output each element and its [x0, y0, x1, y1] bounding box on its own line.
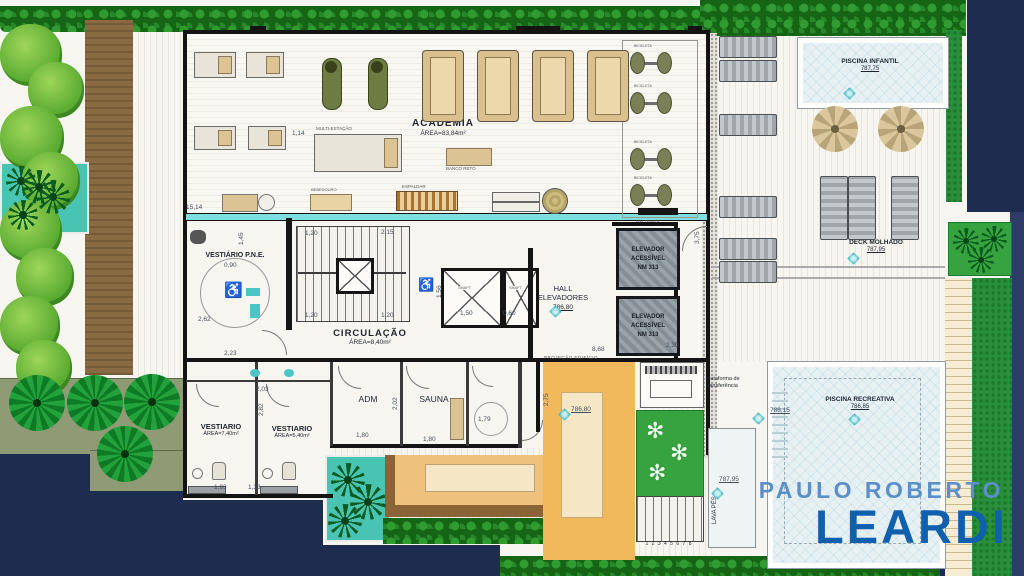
spin-bike: [368, 58, 388, 110]
elevator-2-l2: ACESSÍVEL: [619, 322, 677, 331]
pne-fixture: [250, 304, 260, 318]
toilet: [282, 462, 296, 480]
sink: [262, 468, 273, 479]
dimension-label: 1,93: [214, 485, 227, 492]
dimension-label: 1,79: [478, 417, 491, 424]
dimension-label: 1,20: [381, 313, 394, 320]
vestiario2-label: VESTIARIO ÁREA=5,40m²: [258, 424, 326, 440]
dimension-label: 2,02: [393, 397, 400, 410]
exercise-bike: [628, 90, 674, 116]
right-edge-shadow: [1010, 212, 1024, 576]
multi-station: [314, 134, 402, 172]
dimension-label: 1,20: [305, 231, 318, 238]
wall-sauna-right: [466, 362, 469, 446]
stair-numbers: 1 2 3 4 5 6 7 8: [634, 541, 704, 547]
sun-lounger: [820, 176, 848, 240]
gym-machine: [194, 126, 236, 150]
dimension-label: 0,90: [224, 263, 237, 270]
wheelchair-icon: ♿: [224, 283, 243, 298]
adm-label: ADM: [340, 394, 396, 404]
vestiario1-area: ÁREA=7,40m²: [186, 431, 256, 438]
deck-molhado-name: DECK MOLHADO: [836, 239, 916, 247]
pne-label: VESTIÁRIO P.N.E.: [190, 252, 280, 260]
top-right-trees: [700, 0, 966, 36]
halteres-rack: [638, 208, 678, 215]
pool-ramp: [772, 388, 788, 458]
dimension-label: 788,15: [770, 408, 790, 415]
dimension-label: 1,14: [292, 131, 305, 138]
dimension-label: 8,68: [592, 347, 605, 354]
shaft-1: [441, 268, 503, 328]
dimension-label: 1,20: [305, 313, 318, 320]
gym-bench: [222, 194, 258, 212]
wall-vestiario-bottom: [183, 494, 333, 498]
elevator-2-l1: ELEVADOR: [619, 313, 677, 322]
elevator-2-l3: NM 313: [619, 331, 677, 340]
piscina-infantil: [798, 38, 948, 108]
sun-lounger: [719, 196, 777, 218]
vestiario1-name: VESTIARIO: [186, 422, 256, 431]
projecao-label: PROJEÇÃO EDIFÍCIO: [544, 356, 598, 361]
entry-sink: [284, 369, 294, 377]
treadmill: [422, 50, 464, 122]
shaft-2-label: SHAFT: [509, 286, 522, 290]
gym-stool: [258, 194, 275, 211]
lava-pes-label: LAVA PÉS: [712, 496, 719, 524]
vestiario2-area: ÁREA=5,40m²: [258, 433, 326, 440]
deck-molhado-label: DECK MOLHADO 787,95: [836, 239, 916, 254]
dimension-label: 1,50: [460, 311, 473, 318]
dimension-label: 2,75: [544, 393, 551, 406]
palm-plant: [8, 200, 38, 230]
elevator-1-l3: NM 313: [619, 264, 677, 273]
flower-icon: ✻: [648, 462, 666, 484]
dimension-label: 2,30: [666, 343, 679, 350]
sun-lounger: [719, 114, 777, 136]
sun-lounger: [719, 238, 777, 260]
pne-fixture: [246, 288, 260, 296]
stair-landing: [336, 258, 374, 294]
piscina-recreativa-name: PISCINA RECREATIVA: [800, 396, 920, 404]
gate-mark-1: [250, 26, 266, 34]
parasol-icon: [812, 106, 858, 152]
pergola-wood-bottom: [385, 505, 543, 517]
piscina-infantil-level: 787,75: [810, 66, 930, 73]
treadmill: [532, 50, 574, 122]
pool-stairs: [636, 496, 704, 542]
wall-adm-left: [330, 362, 333, 446]
multi-station-label: MULTI-ESTAÇÃO: [316, 127, 352, 132]
dimension-label: 2,23: [224, 351, 237, 358]
gym-machine: [248, 126, 286, 150]
hall-label: HALL ELEVADORES 786,80: [528, 284, 598, 312]
plataforma-inner: [650, 380, 692, 398]
pne-wall: [286, 218, 292, 330]
wall-adm-right: [400, 362, 403, 446]
plataforma-l1: plataforma de: [706, 376, 768, 383]
left-deck: [133, 30, 185, 380]
palm-plant: [968, 247, 994, 273]
palm-plant: [328, 504, 362, 538]
shaft-1-label: SHAFT: [458, 286, 471, 290]
gym-machine: [246, 52, 284, 78]
logo-line2: LEARDI: [815, 503, 1008, 550]
exercise-bike: [628, 182, 674, 208]
elevator-1-l1: ELEVADOR: [619, 246, 677, 255]
gym-machine: [194, 52, 236, 78]
right-green-strip-top: [946, 30, 962, 202]
piscina-infantil-label: PISCINA INFANTIL 787,75: [810, 58, 930, 73]
floor-plan-image: MULTI-ESTAÇÃO BANCO RETO BEBEDOURO ESPAL…: [0, 0, 1024, 576]
piscina-recreativa-level: 786,85: [800, 404, 920, 411]
gate-mark-3: [688, 26, 702, 34]
bicicleta-label: BICICLETA: [634, 141, 652, 145]
sun-lounger: [719, 261, 777, 283]
dimension-label: 2,15: [381, 230, 394, 237]
circulacao-name: CIRCULAÇÃO: [310, 328, 430, 339]
entry-sink: [250, 369, 260, 377]
wall-rooms-bottom: [330, 444, 522, 448]
flower-icon: ✻: [670, 442, 688, 464]
swirl-tree: [9, 375, 65, 431]
sun-lounger: [719, 36, 777, 58]
dimension-label: 2,82: [259, 403, 266, 416]
parasol-icon: [878, 106, 924, 152]
elevator-1: ELEVADOR ACESSÍVEL NM 313: [616, 228, 680, 290]
bicicleta-label: BICICLETA: [634, 85, 652, 89]
dimension-label: 786,80: [571, 407, 591, 414]
vestiario1-label: VESTIARIO ÁREA=7,40m²: [186, 422, 256, 438]
vestiario2-name: VESTIARIO: [258, 424, 326, 433]
bebedouro-label: BEBEDOURO: [311, 188, 337, 192]
flower-icon: ✻: [646, 420, 664, 442]
dimension-label: 1,33: [248, 485, 261, 492]
espaldar: [396, 191, 458, 211]
vestiario-bench: [260, 486, 298, 494]
hall-level: 786,80: [528, 304, 598, 312]
sun-lounger: [719, 60, 777, 82]
hall-l2: ELEVADORES: [528, 293, 598, 302]
plataforma-hatch: [645, 366, 697, 374]
left-garden-soil: [85, 20, 133, 375]
dimension-label: 2,03: [256, 387, 269, 394]
sun-lounger: [848, 176, 876, 240]
pergola-bench: [425, 464, 535, 492]
exercise-ball: [542, 188, 568, 214]
dimension-label: 787,95: [719, 477, 739, 484]
treadmill: [587, 50, 629, 122]
banco-reto: [446, 148, 492, 166]
bebedouro: [310, 194, 352, 211]
piscina-recreativa-label: PISCINA RECREATIVA 786,85: [800, 396, 920, 411]
elev-top-wall: [612, 222, 678, 226]
toilet: [212, 462, 226, 480]
academia-area: ÁREA=83,84m²: [395, 130, 491, 138]
swirl-tree: [67, 375, 123, 431]
gate-mark-2: [516, 26, 560, 34]
bicicleta-label: BICICLETA: [634, 177, 652, 181]
banco-reto-label: BANCO RETO: [446, 167, 476, 172]
sauna-bench: [450, 398, 464, 440]
treadmill: [477, 50, 519, 122]
elevator-1-l2: ACESSÍVEL: [619, 255, 677, 264]
bicicleta-label: BICICLETA: [634, 45, 652, 49]
palm-plant: [22, 170, 56, 204]
espaldar-label: ESPALDAR: [402, 185, 426, 190]
spin-bike: [322, 58, 342, 110]
pne-fixture-dark: [190, 230, 206, 244]
sink: [192, 468, 203, 479]
dimension-label: 1,45: [239, 232, 246, 245]
dimension-label: 0,60: [503, 311, 516, 318]
piscina-infantil-name: PISCINA INFANTIL: [810, 58, 930, 66]
swirl-tree: [97, 426, 153, 482]
vestiario-entry-wall: [186, 380, 330, 382]
deck-molhado-level: 787,95: [836, 247, 916, 254]
dimension-label: 1,80: [356, 433, 369, 440]
dimension-label: 1,56: [437, 285, 444, 298]
exercise-bike: [628, 50, 674, 76]
gym-rack: [492, 192, 540, 212]
dimension-label: 1,80: [423, 437, 436, 444]
plataforma-label: plataforma de transferência: [706, 376, 768, 390]
wheelchair-icon: ♿: [418, 278, 434, 291]
circulacao-label: CIRCULAÇÃO ÁREA=8,40m²: [310, 328, 430, 347]
circulacao-area: ÁREA=8,40m²: [310, 339, 430, 347]
dimension-label: 3,75: [695, 231, 702, 244]
dimension-label: 2,62: [198, 317, 211, 324]
terrace-left-wall: [536, 362, 540, 432]
sun-lounger: [891, 176, 919, 240]
plataforma-l2: transferência: [706, 383, 768, 390]
swirl-tree: [124, 374, 180, 430]
hall-l1: HALL: [528, 284, 598, 293]
mid-hedge: [383, 518, 543, 544]
exercise-bike: [628, 146, 674, 172]
dimension-label: 15,14: [186, 205, 202, 212]
